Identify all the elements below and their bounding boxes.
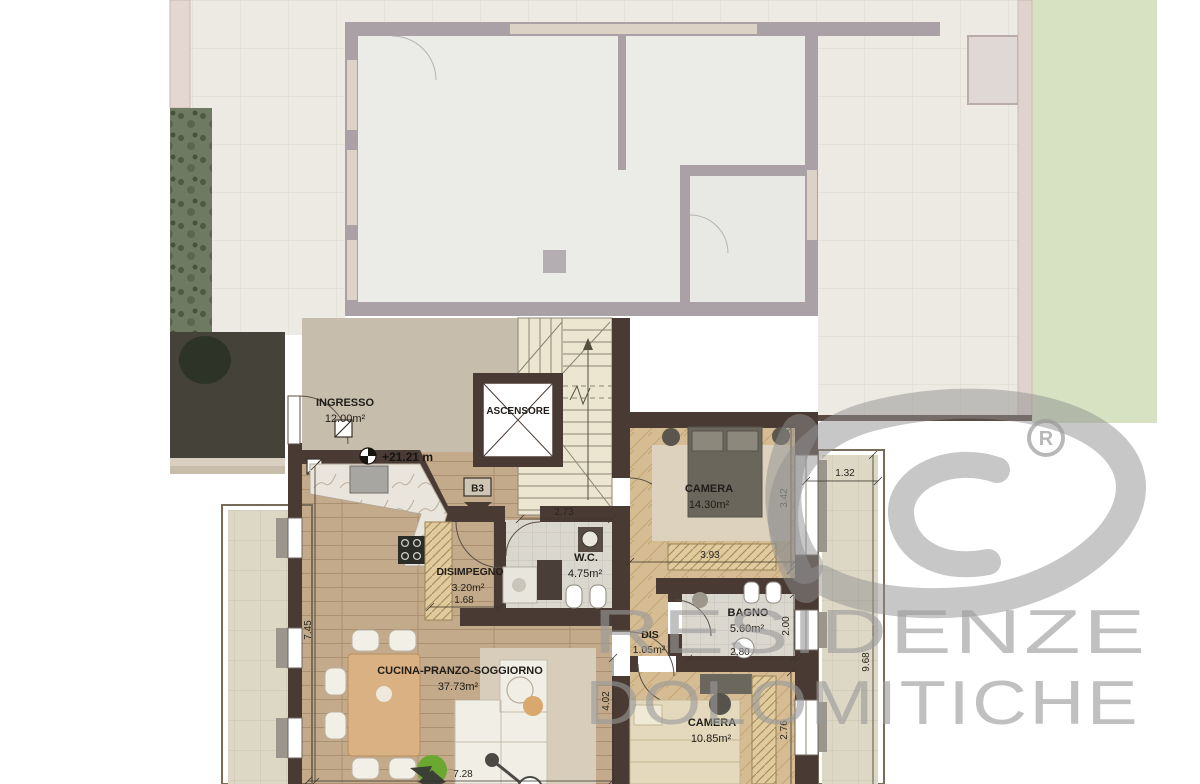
watermark-line2: DOLOMITICHE bbox=[585, 669, 1140, 738]
dim-camera1-w: 3.93 bbox=[700, 550, 720, 561]
watermark-line1: RESIDENZE bbox=[593, 598, 1148, 667]
pavement-left bbox=[190, 0, 345, 335]
washing-machine-door bbox=[582, 531, 598, 547]
area-cucina: 37.73m² bbox=[438, 681, 479, 693]
wall-left-2 bbox=[288, 558, 302, 628]
patio-tree bbox=[179, 336, 231, 384]
area-wc: 4.75m² bbox=[568, 568, 603, 580]
planter bbox=[968, 36, 1018, 104]
lawn bbox=[1032, 0, 1157, 423]
coffee-table-2 bbox=[523, 696, 543, 716]
wall-stair-stub bbox=[612, 318, 630, 428]
nightstand-left bbox=[662, 428, 680, 446]
label-ingresso: INGRESSO bbox=[316, 397, 375, 409]
faded-window-right bbox=[807, 170, 817, 240]
shower-drain bbox=[512, 578, 526, 592]
window-left-1 bbox=[288, 518, 302, 558]
floorplan-canvas: ASCENSORE bbox=[0, 0, 1200, 784]
label-camera1: CAMERA bbox=[685, 483, 733, 495]
pavement-top bbox=[345, 0, 1032, 24]
table-centerpiece bbox=[376, 686, 392, 702]
label-disimpegno: DISIMPEGNO bbox=[436, 566, 503, 578]
entrance-door-leaf bbox=[288, 396, 300, 444]
benchmark-symbol bbox=[360, 448, 376, 464]
area-disimpegno: 3.20m² bbox=[452, 582, 485, 594]
faded-inner-wall-2 bbox=[680, 165, 805, 176]
patio-edge-strip-1 bbox=[170, 458, 285, 466]
dim-living-h: 7.45 bbox=[303, 620, 314, 640]
wall-right-4 bbox=[795, 755, 818, 784]
faded-window-left-2 bbox=[347, 150, 357, 225]
wc-vanity bbox=[537, 560, 562, 600]
elevation-label: +21.21 m bbox=[382, 450, 433, 464]
faded-window-left-3 bbox=[347, 240, 357, 300]
wc-toilet bbox=[566, 585, 582, 608]
floorplan-page: ASCENSORE bbox=[0, 0, 1200, 784]
window-left-3 bbox=[288, 718, 302, 758]
wall-left-4 bbox=[288, 758, 302, 784]
area-camera1: 14.30m² bbox=[689, 499, 730, 511]
bed-1-pillow-right bbox=[727, 431, 758, 451]
faded-wall-bottom bbox=[345, 302, 818, 316]
faded-inner-wall-1 bbox=[618, 36, 626, 170]
bed-1-pillow-left bbox=[692, 431, 723, 451]
window-left-2 bbox=[288, 628, 302, 668]
faded-inner-wall-3 bbox=[680, 176, 690, 302]
hedge bbox=[170, 108, 212, 332]
wall-strip-right bbox=[1018, 0, 1032, 417]
wall-camera1-top bbox=[612, 412, 798, 428]
label-cucina: CUCINA-PRANZO-SOGGIORNO bbox=[377, 665, 543, 677]
dim-living-w: 7.28 bbox=[453, 769, 473, 780]
patio-edge-strip-2 bbox=[170, 466, 285, 474]
cooktop bbox=[398, 536, 425, 564]
unit-badge-label: B3 bbox=[471, 484, 484, 495]
wall-stub-top-left bbox=[170, 0, 190, 108]
faded-room bbox=[690, 176, 805, 302]
label-wc: W.C. bbox=[574, 552, 598, 564]
dim-terrace-right-w: 1.32 bbox=[835, 468, 855, 479]
wall-mid-1 bbox=[612, 428, 630, 478]
wall-left-3 bbox=[288, 668, 302, 718]
faded-window-left-1 bbox=[347, 60, 357, 130]
faded-wall-wing bbox=[818, 22, 940, 36]
faded-shaft bbox=[543, 250, 566, 273]
wardrobe-camera1 bbox=[668, 544, 776, 570]
wall-left-1 bbox=[288, 443, 302, 518]
dim-disimpegno-w: 1.68 bbox=[454, 595, 474, 606]
faded-wall-right bbox=[805, 22, 818, 315]
faded-window-band-top bbox=[510, 24, 757, 34]
elevator-label: ASCENSORE bbox=[486, 406, 550, 417]
dim-stairs: 2.73 bbox=[554, 507, 574, 518]
kitchen-sink bbox=[350, 466, 388, 493]
area-ingresso: 12.00m² bbox=[325, 413, 366, 425]
registered-mark-letter: R bbox=[1039, 428, 1054, 450]
